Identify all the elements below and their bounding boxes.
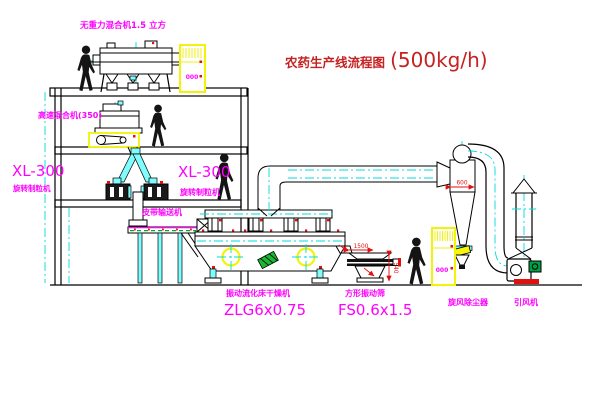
exhaust-duct: [258, 166, 437, 216]
control-cabinet-ground: 000: [432, 228, 455, 285]
vibrating-screen: 1500 540: [347, 244, 401, 282]
screen-width-dim: 1500: [354, 244, 369, 250]
gravity-mixer: [90, 41, 185, 92]
diagram-page: 000: [0, 0, 600, 403]
cabinet-marking: 000: [436, 267, 449, 274]
cyclone-dia-dim: 600: [456, 181, 467, 187]
label-granulator-left-model: XL-300: [12, 162, 64, 180]
label-dryer-model: ZLG6x0.75: [224, 301, 306, 319]
person-ground: [408, 238, 426, 285]
diagram-title-text: 农药生产线流程图: [284, 55, 385, 70]
label-gravity-mixer: 无重力混合机1.5 立方: [79, 20, 167, 31]
label-granulator-right-model: XL-300: [178, 163, 230, 181]
stack: [508, 179, 537, 259]
dryer-top-stubs: [208, 218, 330, 231]
label-granulator-left-name: 旋转制粒机: [12, 183, 51, 193]
granulator-right: [141, 178, 168, 200]
person-top-floor: [77, 46, 95, 92]
label-cyclone: 旋风除尘器: [447, 297, 489, 307]
diagram-title: 农药生产线流程图 (500kg/h): [284, 48, 488, 72]
label-granulator-right-name: 旋转制粒机: [179, 187, 220, 197]
flow-diagram-canvas: 000: [0, 0, 600, 403]
person-second-floor: [150, 105, 166, 147]
diagram-title-capacity: (500kg/h): [390, 48, 487, 72]
label-screen-name: 方形振动筛: [345, 288, 385, 298]
control-cabinet-top: 000: [180, 45, 205, 92]
cabinet-marking: 000: [186, 74, 199, 81]
label-screen-model: FS0.6x1.5: [338, 301, 412, 319]
label-draft-fan: 引风机: [514, 297, 538, 307]
label-belt-conveyor: 皮带输送机: [141, 207, 182, 217]
granulator-left: [106, 178, 131, 200]
high-speed-mixer: [89, 101, 142, 154]
label-dryer-name: 振动流化床干燥机: [226, 288, 290, 298]
screen-height-dim: 540: [392, 262, 398, 273]
fluid-bed-dryer: [195, 210, 352, 283]
induced-draft-fan: [507, 259, 541, 284]
label-high-speed-mixer: 高速混合机(350): [38, 110, 102, 120]
